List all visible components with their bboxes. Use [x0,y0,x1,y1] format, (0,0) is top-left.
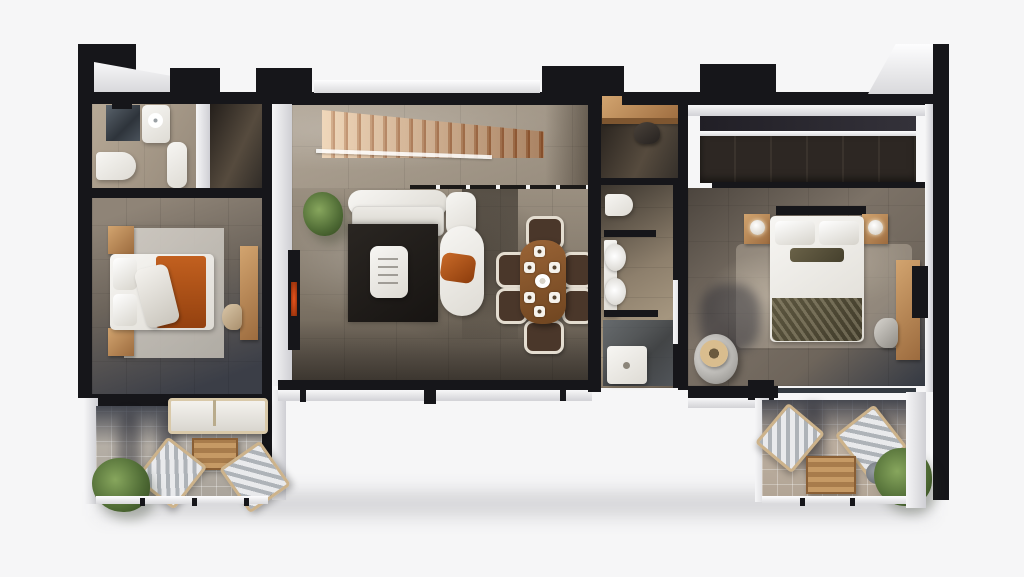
outdoor-coffee-table [806,456,856,494]
right-wing [0,0,1024,577]
parapet-block [700,64,776,94]
balcony-right-east-face [906,392,926,508]
straw-hat [700,340,728,367]
east-wall-face [925,104,933,392]
pillow [819,221,859,245]
bedroom-right-west-wall [678,104,688,390]
bedside-lamp [868,220,883,235]
railing-post [850,498,855,506]
pillow [775,221,815,245]
east-outer-wall [933,44,949,500]
wardrobe-closet [700,136,916,183]
glass-door-track [778,388,916,393]
olive-blanket [772,298,862,341]
monitor [912,266,928,318]
clerestory-band [700,116,916,131]
ne-roof-face [868,44,934,94]
railing-post [800,498,805,506]
right-north-face [688,105,933,116]
floor-plan [0,0,1024,577]
corner-stub [748,380,774,400]
bed-canopy-bar [776,206,866,215]
balcony-right-railing [762,496,906,504]
desk-chair [874,318,898,348]
olive-accent-pillow [790,248,844,262]
bedside-lamp [750,220,765,235]
